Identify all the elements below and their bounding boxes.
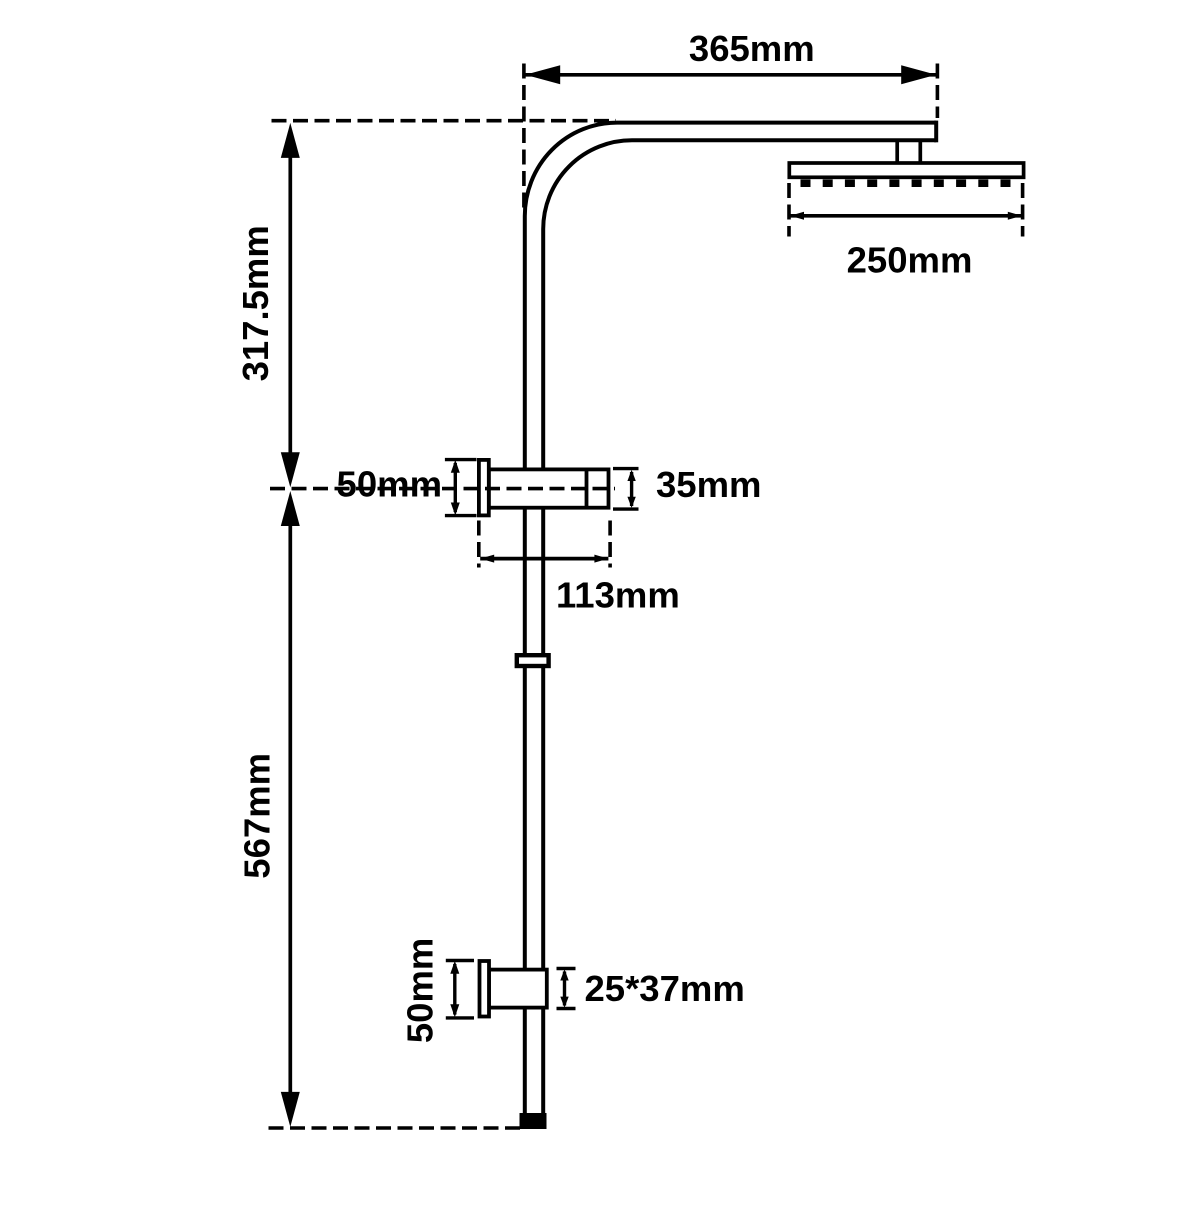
- svg-text:113mm: 113mm: [556, 575, 680, 616]
- svg-text:50mm: 50mm: [400, 938, 441, 1044]
- svg-text:567mm: 567mm: [236, 753, 277, 879]
- svg-text:25*37mm: 25*37mm: [585, 968, 745, 1009]
- svg-text:35mm: 35mm: [656, 464, 762, 505]
- svg-text:317.5mm: 317.5mm: [235, 225, 276, 381]
- svg-text:250mm: 250mm: [847, 240, 973, 281]
- svg-text:365mm: 365mm: [689, 28, 815, 69]
- svg-text:50mm: 50mm: [337, 464, 443, 505]
